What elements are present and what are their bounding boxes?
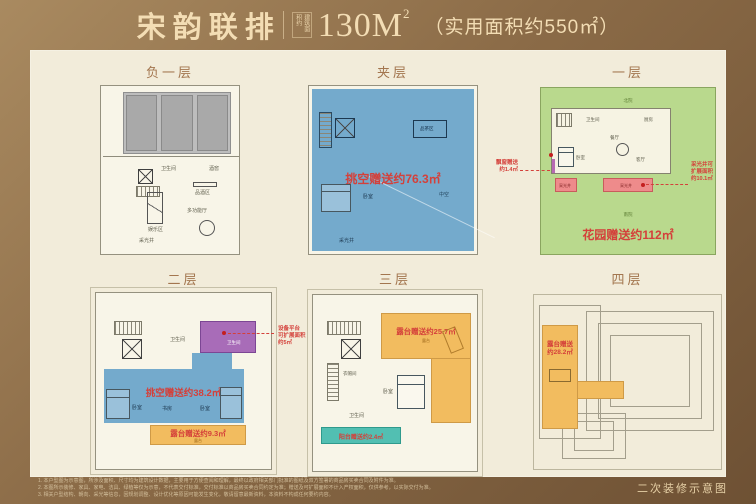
page-title: 宋韵联排 <box>137 4 281 46</box>
floorplan-poster: 宋韵联排 建筑面积约 130M2 （实用面积约550㎡） 负一层 夹层 一层 二… <box>0 0 756 504</box>
yard-label-north: 北院 <box>541 98 715 104</box>
lightwell-highlight: 采光井 <box>603 178 653 192</box>
plan-mezzanine: 品茶区 挑空赠送约76.3㎡ 卧室 中空 采光井 <box>308 85 478 255</box>
room-label-bedroom: 卧室 <box>383 389 393 395</box>
annotation-lightwell-expand: 采光井可 扩展面积 约10.1㎡ <box>691 162 731 183</box>
floor-label-fourth: 四层 <box>533 269 722 288</box>
room-label-wine-tasting: 品酒区 <box>195 190 210 196</box>
stairs-icon <box>319 112 332 148</box>
gift-line: 约28.2㎡ <box>540 349 580 357</box>
area-value: 130M2 <box>318 6 411 45</box>
room-label-lightwell: 采光井 <box>139 238 154 244</box>
lightwell-highlight: 采光井 <box>555 178 577 192</box>
room-label-dining: 餐厅 <box>610 135 619 141</box>
balcony-highlight: 阳台赠送约2.4㎡ <box>321 427 401 444</box>
area-note: 建筑面积约 <box>292 12 312 38</box>
floor-label-third: 三层 <box>312 269 478 288</box>
room-label-lightwell: 采光井 <box>620 183 632 189</box>
room-label-wine-cellar: 酒窖 <box>209 166 219 172</box>
room-label-entertainment: 娱乐区 <box>148 227 163 233</box>
room-label-multifunction-hall: 多功能厅 <box>187 208 207 214</box>
plan-basement: 卫生间 酒窖 品酒区 娱乐区 多功能厅 采光井 <box>100 85 240 255</box>
room-label-lightwell: 采光井 <box>559 183 571 189</box>
bed-icon <box>558 147 574 167</box>
room-label-bathroom: 卫生间 <box>227 340 241 346</box>
room-label-bathroom: 卫生间 <box>586 117 600 123</box>
header: 宋韵联排 建筑面积约 130M2 （实用面积约550㎡） <box>0 0 756 50</box>
room-label-study: 书房 <box>162 406 172 412</box>
elevator-icon <box>335 118 355 138</box>
parking-stall <box>197 95 228 151</box>
subtitle: （实用面积约550㎡） <box>425 12 620 39</box>
disclaimer-line: 3. 相关户型结构、朝向、采光等信息，因规划调整、设计优化等原因可能发生变化，敬… <box>38 492 638 499</box>
bar-counter-icon <box>193 182 217 187</box>
plan-third-floor: 露台赠送约25.7㎡ 露台 衣帽间 卧室 卫生间 阳台赠送约2.4㎡ <box>312 294 478 472</box>
room-label-bathroom: 卫生间 <box>161 166 176 172</box>
room-label-bathroom: 卫生间 <box>170 337 185 343</box>
stairs-icon <box>556 113 572 127</box>
roof-outline <box>574 421 614 451</box>
floorplans-panel: 负一层 夹层 一层 二层 三层 四层 卫生间 酒窖 品酒区 娱乐区 多功能厅 采… <box>30 50 726 477</box>
floor-label-basement: 负一层 <box>100 62 240 81</box>
plan-fourth-floor: 露台赠送 约28.2㎡ <box>533 294 722 470</box>
room-label-terrace: 露台 <box>151 438 245 444</box>
room-label-bedroom: 卧室 <box>363 194 373 200</box>
disclaimer-block: 1. 本户型图为示意图，所涉及面积、尺寸均为建筑设计数据，主要用于方便查阅和理解… <box>38 478 638 499</box>
room-label-lightwell: 采光井 <box>339 238 354 244</box>
plan-first-floor: 北院 卫生间 厨房 餐厅 卧室 客厅 采光井 采光井 南院 花园赠送约112㎡ <box>540 87 716 255</box>
terrace-highlight: 露台赠送约9.3㎡ 露台 <box>150 425 246 445</box>
terrace-highlight <box>578 381 624 399</box>
room-label-bedroom: 卧室 <box>576 155 585 161</box>
equipment-platform-highlight: 卫生间 <box>200 321 256 353</box>
room-label-bedroom: 卧室 <box>200 406 210 412</box>
annotation-dot <box>549 153 553 157</box>
terrace-highlight <box>431 359 471 423</box>
terrace-highlight: 露台赠送约25.7㎡ 露台 <box>381 313 471 359</box>
parking-stall <box>126 95 157 151</box>
annotation-line: 约1.4㎡ <box>474 167 518 174</box>
floor-label-mezzanine: 夹层 <box>308 62 478 81</box>
annotation-bay-window: 飘窗赠送 约1.4㎡ <box>474 160 518 174</box>
room-label-living: 客厅 <box>636 157 645 163</box>
floor-label-first: 一层 <box>540 62 716 81</box>
parking-stall <box>161 95 192 151</box>
round-table-icon <box>199 220 215 236</box>
room-label-closet: 衣帽间 <box>343 371 357 377</box>
void-highlight-area <box>192 353 232 369</box>
annotation-dash-line <box>520 170 550 171</box>
annotation-dash-line <box>646 184 688 185</box>
gift-line: 露台赠送 <box>540 341 580 349</box>
annotation-line: 约10.1㎡ <box>691 176 731 183</box>
gift-label-terrace: 露台赠送 约28.2㎡ <box>540 341 580 357</box>
gift-label-garden: 花园赠送约112㎡ <box>541 226 715 243</box>
annotation-dash-line <box>228 333 274 334</box>
room-label-kitchen: 厨房 <box>644 117 653 123</box>
parking-area <box>123 92 231 154</box>
annotation-dot <box>641 183 645 187</box>
elevator-icon <box>122 339 142 359</box>
room-label-bedroom: 卧室 <box>132 405 142 411</box>
room-label-void: 中空 <box>439 192 449 198</box>
annotation-line: 飘窗赠送 <box>474 160 518 167</box>
house-outline: 卫生间 厨房 餐厅 卧室 客厅 <box>551 108 671 174</box>
yard-label-south: 南院 <box>541 212 715 218</box>
stairs-icon <box>114 321 142 335</box>
annotation-line: 采光井可 <box>691 162 731 169</box>
billiard-table-icon <box>147 192 163 224</box>
annotation-line: 扩展面积 <box>691 169 731 176</box>
bed-icon <box>321 184 351 212</box>
closet-shelves-icon <box>327 363 339 401</box>
bed-icon <box>106 389 130 419</box>
title-divider <box>283 11 284 39</box>
disclaimer-line: 1. 本户型图为示意图，所涉及面积、尺寸均为建筑设计数据，主要用于方便查阅和理解… <box>38 478 638 485</box>
floor-label-second: 二层 <box>95 269 272 288</box>
elevator-icon <box>341 339 361 359</box>
room-label-tea-area: 品茶区 <box>420 126 434 132</box>
stairs-icon <box>327 321 361 335</box>
annotation-dot <box>222 331 226 335</box>
gift-label-balcony: 阳台赠送约2.4㎡ <box>322 432 400 441</box>
round-table-icon <box>616 143 629 156</box>
area-number: 130M <box>318 7 403 44</box>
elevator-icon <box>138 169 153 184</box>
wall-line <box>103 156 239 157</box>
area-superscript: 2 <box>403 6 411 21</box>
table-icon <box>549 369 571 382</box>
bay-window-highlight <box>552 159 555 173</box>
plan-second-floor: 卫生间 卫生间 挑空赠送约38.2㎡ 卧室 书房 卧室 露台赠送约9.3㎡ 露台 <box>95 292 272 470</box>
room-label-bathroom: 卫生间 <box>349 413 364 419</box>
bed-icon <box>220 387 242 419</box>
disclaimer-line: 2. 本图所示装修、家具、家电、洁具、绿植等仅为示意，不代表交付标准，交付标准以… <box>38 485 638 492</box>
bed-icon <box>397 375 425 409</box>
footer-note: 二次装修示意图 <box>637 480 728 496</box>
